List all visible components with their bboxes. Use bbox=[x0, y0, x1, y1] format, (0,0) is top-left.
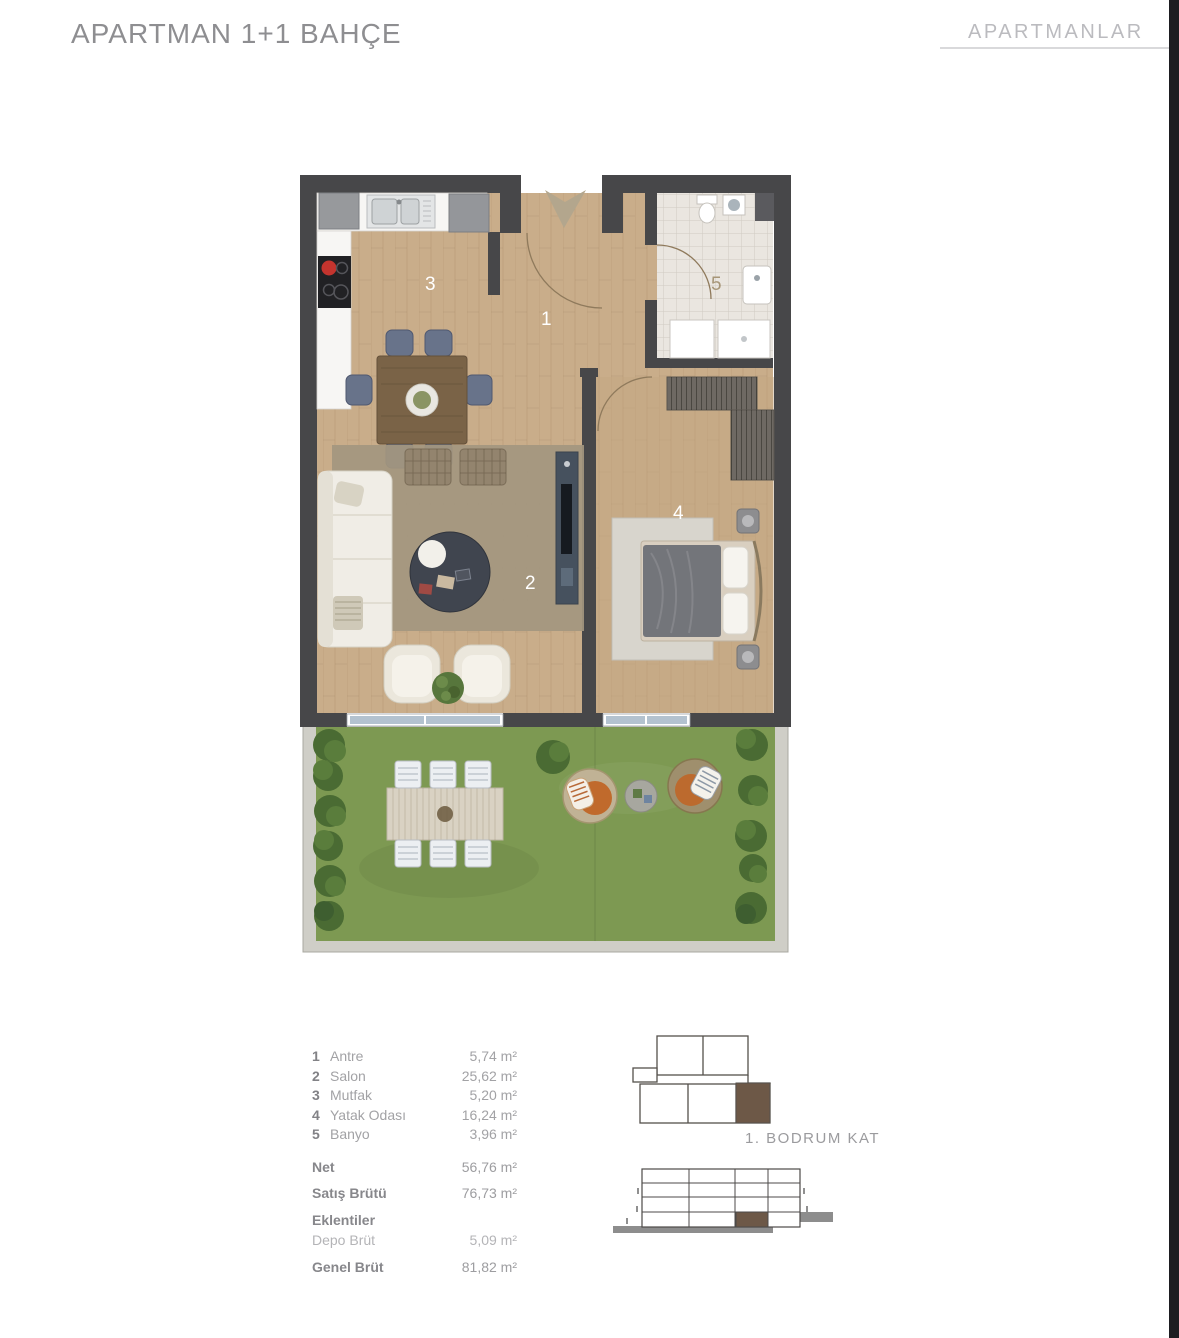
room-label-antre: 1 bbox=[541, 309, 552, 330]
nav-link-apartmanlar[interactable]: APARTMANLAR bbox=[968, 21, 1144, 44]
highlighted-unit bbox=[736, 1083, 770, 1123]
lounge-side-table bbox=[625, 780, 657, 812]
right-edge-bar bbox=[1169, 0, 1179, 1338]
section-diagram bbox=[608, 1164, 843, 1244]
total-satis-brutu: Satış Brütü 76,73 m² bbox=[312, 1184, 517, 1203]
floor-plan: 1 2 3 4 5 bbox=[299, 168, 791, 958]
legend-row-banyo: 5 Banyo 3,96 m² bbox=[312, 1125, 517, 1145]
nav-underline bbox=[940, 47, 1169, 49]
legend-row-yatak-odasi: 4 Yatak Odası 16,24 m² bbox=[312, 1106, 517, 1126]
kitchen-sink bbox=[367, 195, 435, 228]
washing-machine bbox=[723, 195, 745, 215]
total-genel-brut: Genel Brüt 81,82 m² bbox=[312, 1258, 517, 1277]
legend-row-antre: 1 Antre 5,74 m² bbox=[312, 1047, 517, 1067]
legend-row-mutfak: 3 Mutfak 5,20 m² bbox=[312, 1086, 517, 1106]
plant bbox=[432, 672, 464, 704]
outdoor-table bbox=[387, 788, 503, 840]
total-depo-brut: Depo Brüt 5,09 m² bbox=[312, 1231, 517, 1250]
garden-bush-top bbox=[536, 740, 570, 774]
room-label-salon: 2 bbox=[525, 573, 536, 594]
toilet bbox=[697, 195, 717, 223]
washbasin bbox=[743, 266, 771, 304]
room-label-yatak: 4 bbox=[673, 503, 684, 524]
legend-row-salon: 2 Salon 25,62 m² bbox=[312, 1067, 517, 1087]
cooktop bbox=[318, 256, 351, 308]
lounge-chair-left bbox=[563, 769, 617, 823]
tv-unit bbox=[556, 452, 578, 604]
shower-tub bbox=[670, 320, 770, 358]
dishwasher bbox=[449, 194, 489, 232]
lounge-chair-right bbox=[668, 759, 724, 813]
garden bbox=[303, 726, 788, 952]
highlighted-unit-section bbox=[736, 1212, 768, 1227]
fridge bbox=[319, 193, 359, 229]
room-label-mutfak: 3 bbox=[425, 274, 436, 295]
total-eklentiler: Eklentiler bbox=[312, 1211, 517, 1230]
page: APARTMAN 1+1 BAHÇE APARTMANLAR bbox=[0, 0, 1179, 1338]
area-legend: 1 Antre 5,74 m² 2 Salon 25,62 m² 3 Mutfa… bbox=[312, 1047, 517, 1277]
coffee-table bbox=[410, 532, 490, 612]
bed bbox=[641, 541, 761, 641]
key-plan-caption: 1. BODRUM KAT bbox=[745, 1130, 880, 1147]
key-plan bbox=[620, 1030, 790, 1130]
total-net: Net 56,76 m² bbox=[312, 1158, 517, 1177]
page-title: APARTMAN 1+1 BAHÇE bbox=[71, 18, 402, 50]
sofa bbox=[318, 471, 392, 647]
room-label-banyo: 5 bbox=[711, 274, 722, 295]
